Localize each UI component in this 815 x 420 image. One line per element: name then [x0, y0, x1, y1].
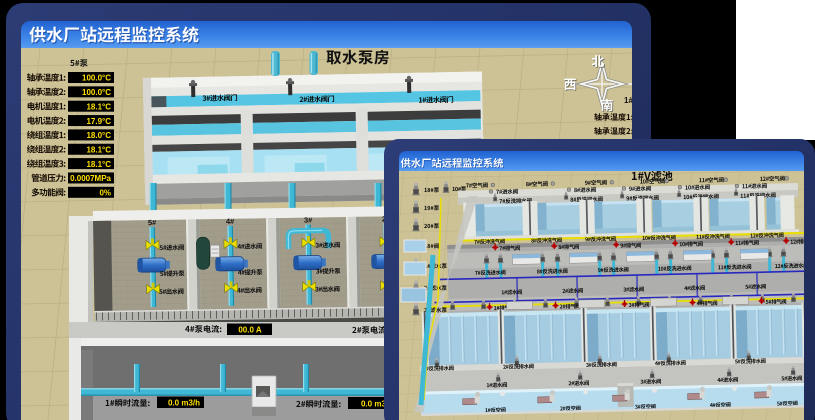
svg-text:18.0°C: 18.0°C	[86, 131, 111, 140]
svg-text:5#: 5#	[148, 218, 157, 227]
svg-text:4#: 4#	[226, 217, 235, 226]
svg-text:0%: 0%	[99, 189, 111, 198]
svg-text:3#: 3#	[304, 216, 313, 225]
svg-text:100.0°C: 100.0°C	[82, 74, 111, 83]
svg-text:00.0 A: 00.0 A	[238, 326, 261, 335]
svg-text:100.0°C: 100.0°C	[82, 88, 111, 97]
svg-text:0.0007MPa: 0.0007MPa	[70, 174, 111, 183]
svg-text:18.1°C: 18.1°C	[86, 102, 111, 111]
svg-text:18.1°C: 18.1°C	[86, 160, 111, 169]
svg-text:18.1°C: 18.1°C	[86, 145, 111, 154]
svg-text:1#: 1#	[624, 96, 632, 105]
svg-text:0.0 m3/h: 0.0 m3/h	[168, 399, 200, 408]
svg-text:17.9°C: 17.9°C	[86, 117, 111, 126]
